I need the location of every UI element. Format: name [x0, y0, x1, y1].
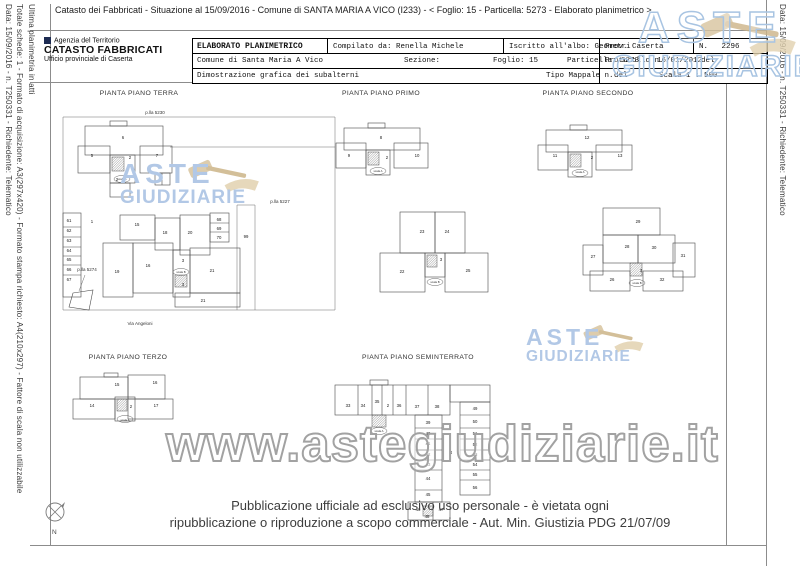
table-compilato: Compilato da: Renella Michele [333, 43, 464, 51]
watermark-aste-right: ASTE [526, 326, 603, 349]
frame-right-line [766, 0, 767, 566]
room-number: 29 [636, 219, 641, 224]
room-number: 2 [591, 155, 594, 160]
plan-label: Via Angeloni [128, 321, 153, 326]
plan-label: scala A [575, 170, 584, 174]
title-piano-seminterrato: PIANTA PIANO SEMINTERRATO [362, 354, 474, 361]
table-sezione: Sezione: [404, 57, 440, 65]
room-number: 49 [473, 406, 478, 411]
room-number: 6 [122, 135, 125, 140]
room-number: 8 [380, 135, 383, 140]
room-number: 9 [348, 153, 351, 158]
room-number: 23 [420, 229, 425, 234]
table-foglio: Foglio: 15 [493, 57, 538, 65]
room-number: 56 [473, 485, 478, 490]
margin-left-data: Data: 15/09/2016 - n. T250331 - Richiede… [4, 4, 13, 216]
room-number: 30 [652, 245, 657, 250]
room-number: 13 [618, 153, 623, 158]
room-number: 37 [415, 404, 420, 409]
compass: N [40, 498, 76, 538]
room-number: 2 [130, 404, 133, 409]
floor-plan-terra: 6572211518201916332121616263646566676869… [55, 105, 345, 335]
table-left-extension-line [30, 82, 192, 83]
plan-label: scala B [632, 281, 641, 285]
room-number: 17 [154, 403, 159, 408]
room-number: 66 [67, 267, 72, 272]
room-number: 35 [375, 399, 380, 404]
room-number: 5 [91, 153, 94, 158]
room-number: 38 [435, 404, 440, 409]
room-number: 1 [91, 219, 94, 224]
watermark-giudiziarie-left: GIUDIZIARIE [120, 188, 246, 207]
plan-label: scala B [430, 280, 439, 284]
room-number: 16 [146, 263, 151, 268]
room-number: 19 [115, 269, 120, 274]
plan-label: p.lla 5230 [145, 110, 165, 115]
room-number: 28 [625, 244, 630, 249]
room-number: 16 [153, 380, 158, 385]
room-number: 70 [217, 235, 222, 240]
room-number: 20 [188, 230, 193, 235]
plan-label: p.lla 5227 [270, 199, 290, 204]
plan-label: scala A [120, 418, 129, 422]
catasto-fabbricati-title: CATASTO FABBRICATI [44, 44, 204, 56]
room-number: 27 [591, 254, 596, 259]
url-watermark: www.astegiudiziarie.it [166, 414, 719, 473]
room-number: 69 [217, 226, 222, 231]
publication-line2: ripubblicazione o riproduzione a scopo c… [170, 514, 671, 531]
room-number: 18 [163, 230, 168, 235]
frame-bottom-line [30, 545, 766, 546]
room-number: 25 [466, 268, 471, 273]
room-number: 21 [210, 268, 215, 273]
room-number: 2 [387, 403, 390, 408]
document-header: Catasto dei Fabbricati - Situazione al 1… [55, 5, 652, 15]
plan-label: scala B [176, 270, 185, 274]
room-number: 24 [445, 229, 450, 234]
watermark-giudiziarie-top: GIUDIZIARIE [612, 52, 800, 82]
room-number: 44 [426, 476, 431, 481]
publication-line1: Pubblicazione ufficiale ad esclusivo uso… [170, 497, 671, 514]
table-comune: Comune di Santa Maria A Vico [197, 57, 323, 65]
publication-notice: Pubblicazione ufficiale ad esclusivo uso… [170, 497, 671, 531]
room-number: 15 [115, 382, 120, 387]
table-title: ELABORATO PLANIMETRICO [197, 42, 303, 51]
margin-left-ultima: Ultima planimetria in atti [27, 4, 36, 95]
room-number: 67 [67, 277, 72, 282]
watermark-giudiziarie-right: GIUDIZIARIE [526, 349, 631, 365]
plan-label: scala A [373, 169, 382, 173]
room-number: 3 [640, 268, 643, 273]
room-number: 22 [400, 269, 405, 274]
table-dimostrazione: Dimostrazione grafica dei subalterni [197, 72, 359, 80]
room-number: 63 [67, 238, 72, 243]
margin-left-totale: Totale schede: 1 - Formato di acquisizio… [15, 4, 24, 494]
room-number: 31 [681, 253, 686, 258]
room-number: 21 [201, 298, 206, 303]
room-number: 3 [182, 258, 185, 263]
room-number: 12 [585, 135, 590, 140]
watermark-aste-left: ASTE [120, 160, 215, 188]
room-number: 62 [67, 228, 72, 233]
frame-left-line [50, 4, 51, 545]
agenzia-logo: Agenzia del Territorio CATASTO FABBRICAT… [44, 37, 204, 63]
room-number: 15 [135, 222, 140, 227]
room-number: 32 [660, 277, 665, 282]
floor-plan-secondo: 1211132292830273126323scala Ascala B [535, 105, 735, 305]
compass-north-arrow [61, 502, 65, 508]
agenzia-emblem-icon [44, 37, 51, 44]
room-number: 64 [67, 248, 72, 253]
room-number: 99 [244, 234, 249, 239]
floor-plan-primo: 89102232422253scala Ascala B [330, 105, 500, 305]
room-number: 36 [397, 403, 402, 408]
agenzia-line3: Ufficio provinciale di Caserta [44, 56, 204, 63]
room-number: 10 [415, 153, 420, 158]
title-piano-secondo: PIANTA PIANO SECONDO [543, 90, 634, 97]
compass-n-label: N [52, 529, 57, 536]
room-number: 61 [67, 218, 72, 223]
plan-label: p.lla 5274 [77, 267, 97, 272]
title-piano-terzo: PIANTA PIANO TERZO [89, 354, 168, 361]
title-piano-terra: PIANTA PIANO TERRA [100, 90, 179, 97]
table-col-divider [503, 39, 504, 53]
title-piano-primo: PIANTA PIANO PRIMO [342, 90, 420, 97]
room-number: 34 [361, 403, 366, 408]
room-number: 14 [90, 403, 95, 408]
agenzia-line1: Agenzia del Territorio [44, 37, 204, 44]
room-number: 33 [346, 403, 351, 408]
table-tipo-mappale: Tipo Mappale n. [546, 72, 614, 80]
room-number: 2 [386, 155, 389, 160]
room-number: 68 [217, 217, 222, 222]
room-number: 26 [610, 277, 615, 282]
watermark-aste-top: ASTE [638, 6, 783, 50]
room-number: 3 [440, 257, 443, 262]
table-col-divider [327, 39, 328, 53]
room-number: 65 [67, 257, 72, 262]
room-number: 11 [553, 153, 558, 158]
